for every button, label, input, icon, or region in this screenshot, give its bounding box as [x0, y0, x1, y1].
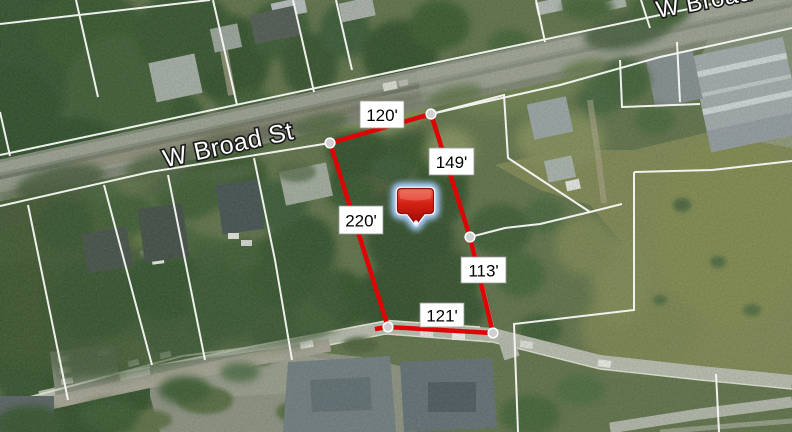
- svg-text:113': 113': [468, 261, 498, 280]
- svg-text:121': 121': [426, 306, 458, 325]
- svg-text:149': 149': [436, 153, 468, 172]
- svg-text:120': 120': [366, 106, 398, 125]
- svg-text:220': 220': [345, 211, 377, 230]
